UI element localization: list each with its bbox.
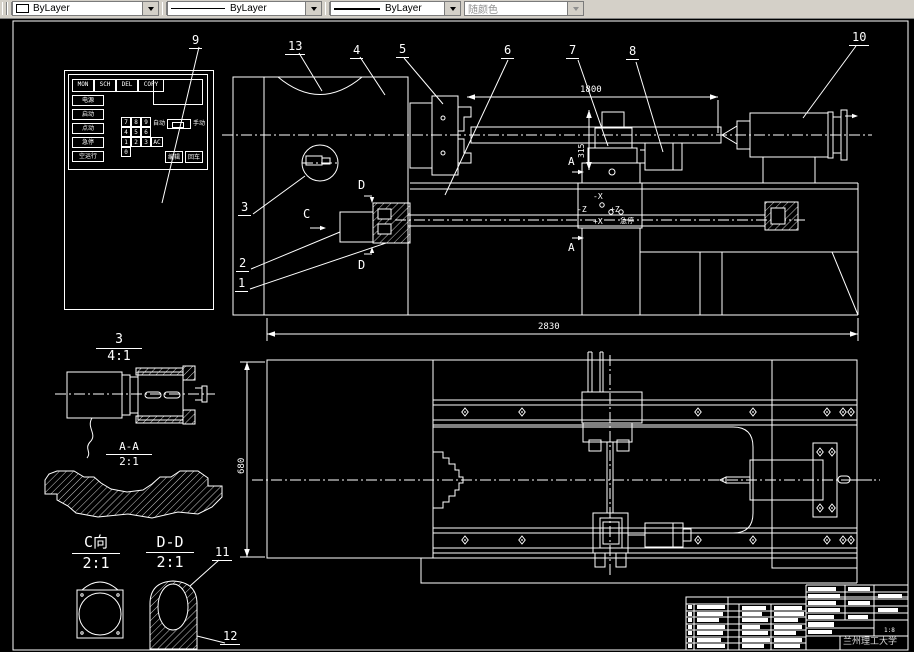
chevron-down-icon[interactable] (305, 2, 321, 15)
bed (233, 183, 858, 315)
panel-mode-knob (172, 122, 184, 128)
panel-key-ac: AC (151, 137, 163, 147)
panel-manual-label: 手动 (193, 121, 205, 128)
control-panel-face: MON SCH DEL COPY 电源 启动 点动 急停 空运行 7 8 9 4… (68, 74, 208, 170)
plotstyle-combo-value: 随颜色 (468, 1, 567, 16)
panel-key-0: 0 (121, 147, 131, 157)
chevron-down-icon[interactable] (142, 2, 158, 15)
carriage-toolpost (578, 112, 682, 315)
cad-application-window: ByLayer ByLayer ByLayer 随颜色 (0, 0, 914, 652)
callout-leaders (162, 46, 856, 289)
tailstock (722, 110, 858, 183)
chevron-down-icon[interactable] (444, 2, 460, 15)
feed-motor (340, 212, 373, 242)
lineweight-preview (334, 8, 380, 10)
lineweight-combo-value: ByLayer (385, 3, 444, 14)
object-properties-toolbar: ByLayer ByLayer ByLayer 随颜色 (0, 0, 914, 19)
title-block (686, 585, 908, 650)
dim-2830 (267, 318, 858, 341)
panel-button-power: 电源 (72, 95, 104, 106)
panel-edit-button: 编辑 (165, 151, 183, 163)
panel-tab-sch: SCH (94, 79, 116, 92)
panel-key-3: 3 (141, 137, 151, 147)
view-c (77, 582, 123, 638)
leadscrew-drive (340, 202, 805, 243)
headstock-plan (267, 360, 433, 558)
panel-key-5: 5 (131, 127, 141, 137)
linetype-combo-value: ByLayer (230, 3, 305, 14)
panel-key-6: 6 (141, 127, 151, 137)
dim-680-line (240, 362, 265, 557)
detail-views (45, 366, 222, 649)
control-panel-drawing: MON SCH DEL COPY 电源 启动 点动 急停 空运行 7 8 9 4… (64, 70, 214, 310)
panel-key-2: 2 (131, 137, 141, 147)
panel-key-7: 7 (121, 117, 131, 127)
section-aa-profile (45, 471, 222, 518)
panel-tab-del: DEL (116, 79, 138, 92)
panel-button-start: 启动 (72, 109, 104, 120)
bed-rails (267, 400, 857, 558)
plotstyle-control-combo: 随颜色 (464, 1, 584, 16)
lineweight-control-combo[interactable]: ByLayer (330, 1, 461, 16)
front-view-lathe (162, 46, 872, 341)
chevron-down-icon (567, 2, 583, 15)
panel-key-8: 8 (131, 117, 141, 127)
linetype-control-combo[interactable]: ByLayer (167, 1, 322, 16)
rail-markers (462, 408, 854, 544)
panel-key-9: 9 (141, 117, 151, 127)
panel-key-1: 1 (121, 137, 131, 147)
panel-button-jog: 点动 (72, 123, 104, 134)
motor-cable (87, 418, 93, 458)
panel-auto-label: 自动 (153, 121, 165, 128)
panel-mode-switch (167, 119, 191, 129)
color-combo-value: ByLayer (33, 3, 142, 14)
detail-3-view (55, 366, 215, 458)
dim-315 (586, 110, 592, 170)
plan-view-lathe (190, 352, 880, 643)
section-dd (150, 581, 197, 649)
color-swatch (16, 4, 29, 13)
panel-tab-mon: MON (72, 79, 94, 92)
color-control-combo[interactable]: ByLayer (12, 1, 159, 16)
motor-plan (628, 523, 691, 547)
panel-key-4: 4 (121, 127, 131, 137)
panel-button-estop: 急停 (72, 137, 104, 148)
linetype-preview (171, 8, 225, 9)
panel-display (153, 79, 203, 105)
panel-button-dryrun: 空运行 (72, 151, 104, 162)
panel-enter-button: 回车 (185, 151, 203, 163)
